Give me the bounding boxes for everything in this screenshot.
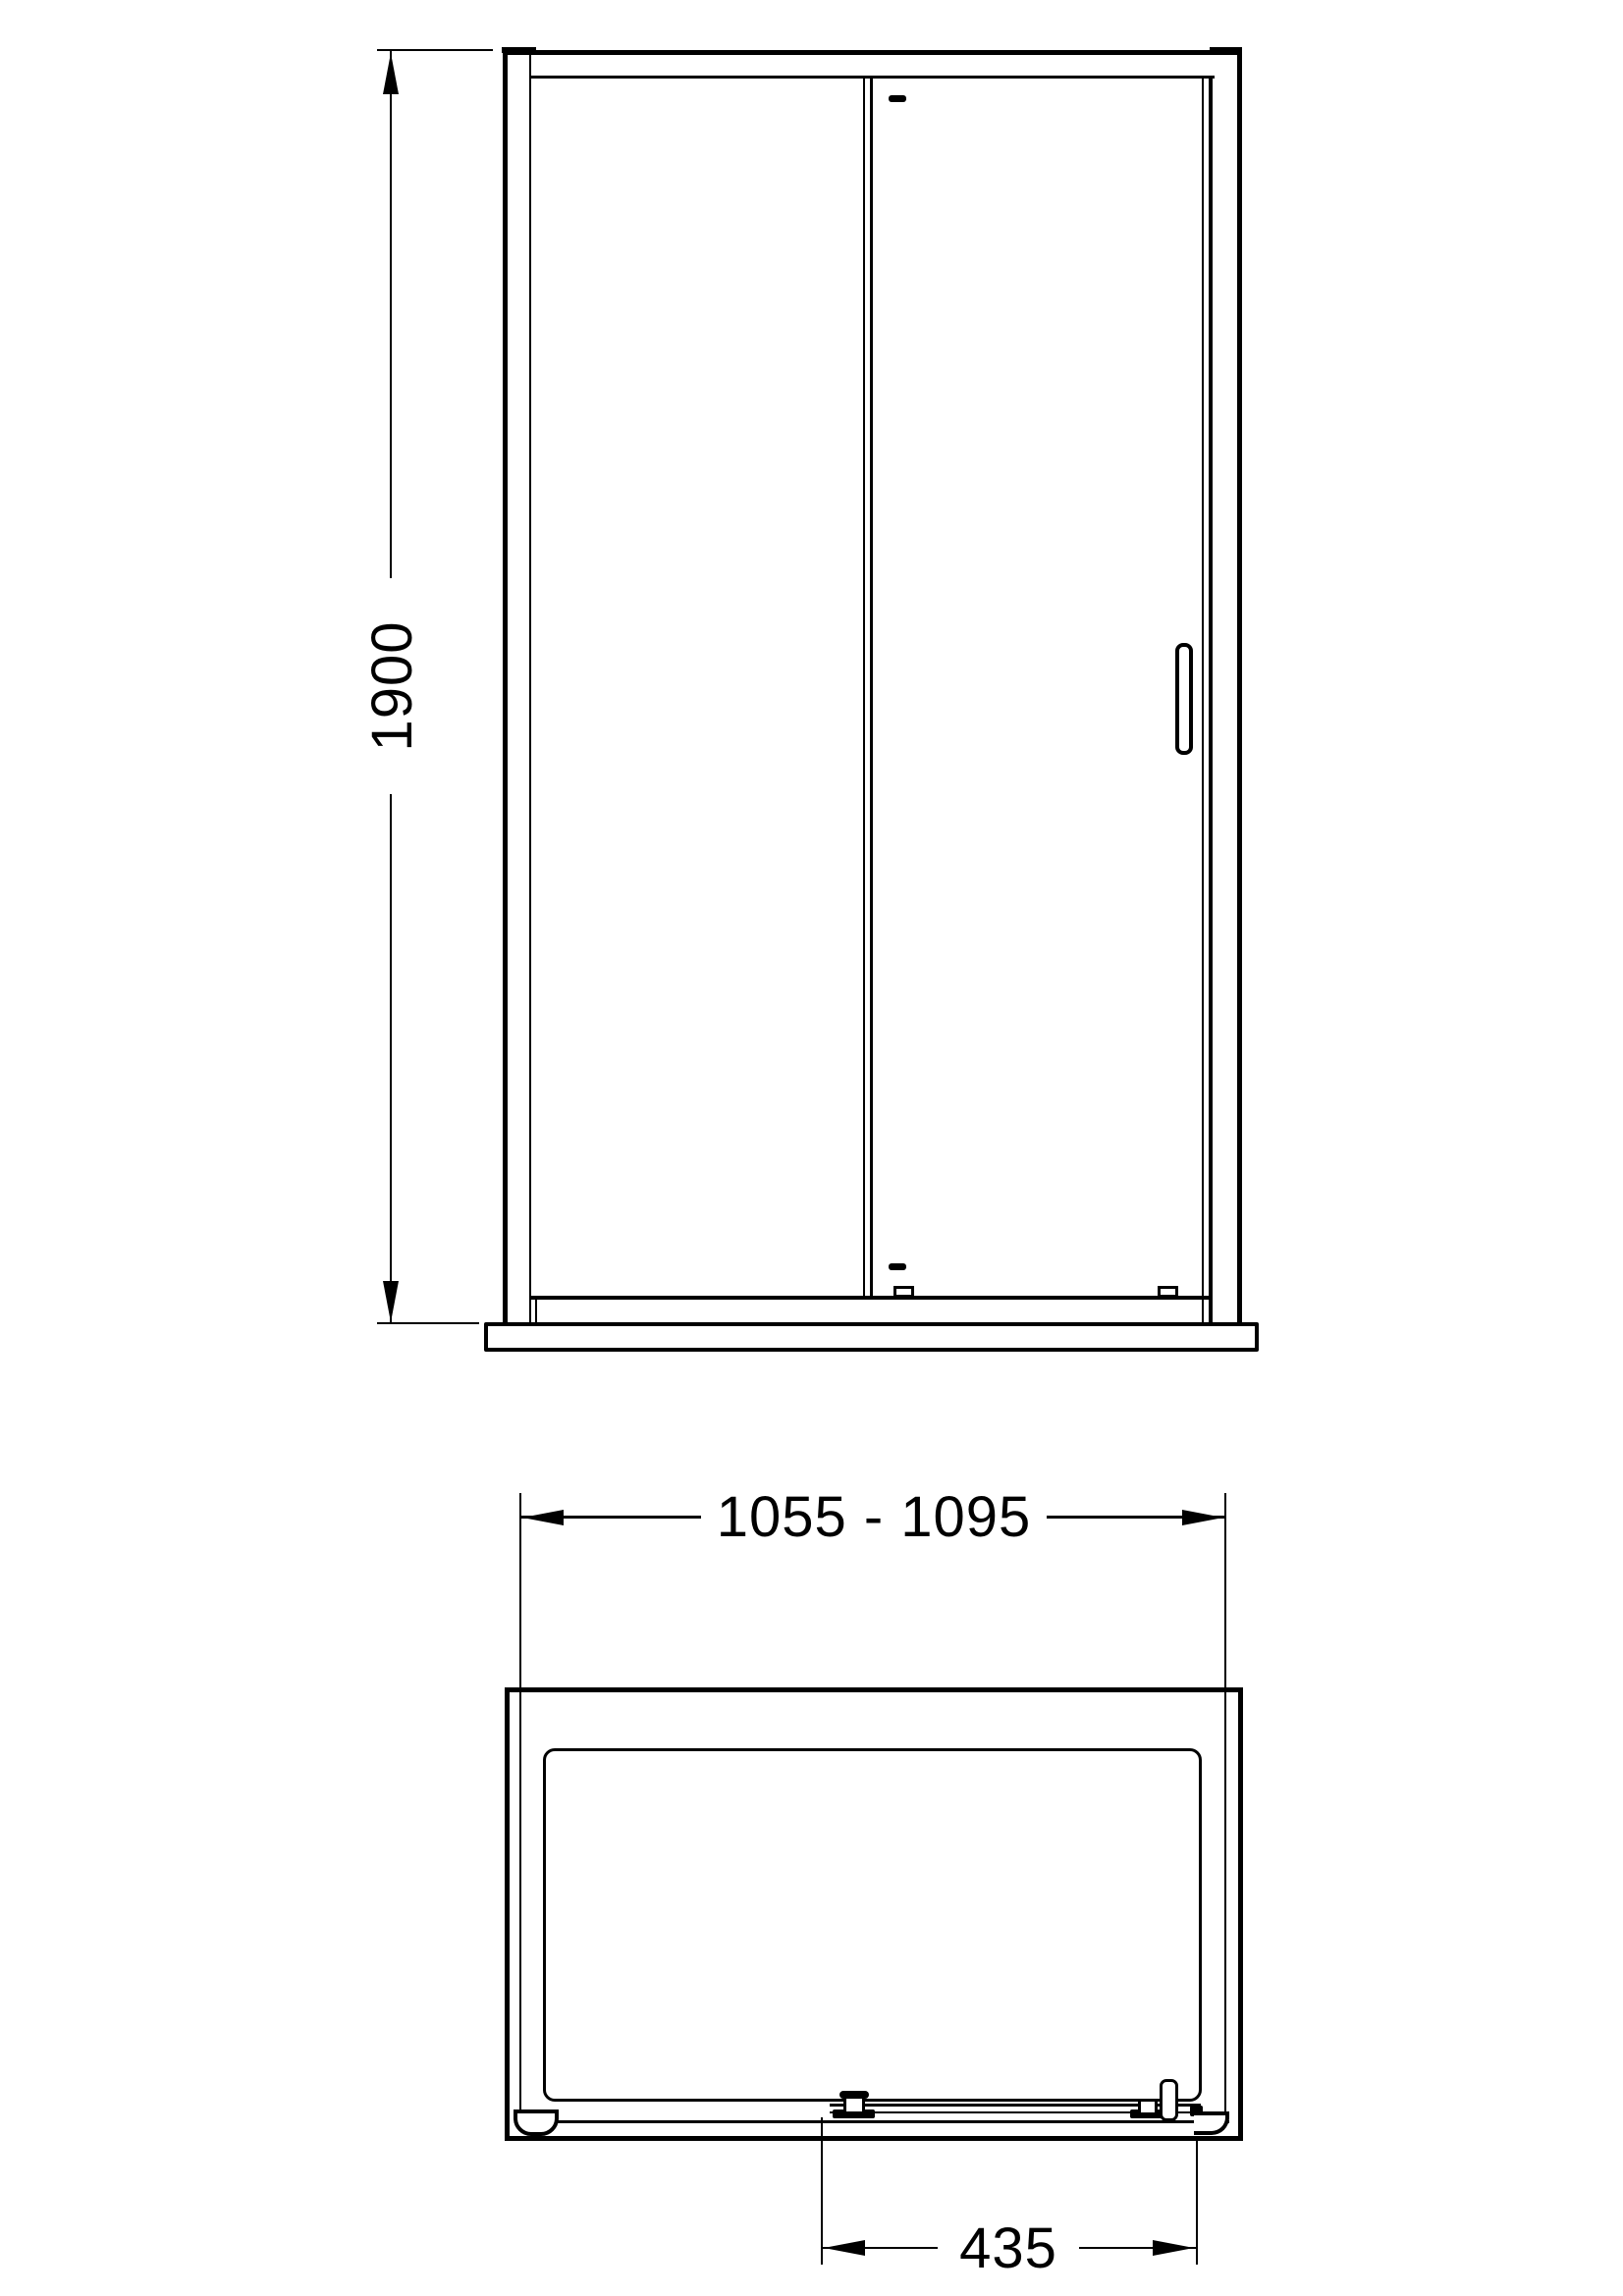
offset-dimension-label: 435: [938, 2217, 1079, 2278]
center-panel-overlap-line-1: [863, 79, 865, 1298]
arrowhead-left-icon: [522, 1510, 564, 1525]
door-handle-plan: [1160, 2079, 1178, 2121]
arrowhead-right-icon: [1153, 2240, 1194, 2256]
height-extension-line-bottom: [377, 1322, 479, 1324]
offset-extension-line-left: [821, 2117, 823, 2265]
left-stile-inner-edge: [529, 55, 531, 1323]
arrowhead-up-icon: [383, 53, 399, 94]
technical-drawing-sheet: 1900 1055 - 1095: [0, 0, 1623, 2296]
bottom-rail-edge: [531, 1296, 1209, 1300]
height-dimension-label: 1900: [361, 578, 422, 794]
roller-right-plan: [1138, 2099, 1158, 2115]
width-dimension-label: 1055 - 1095: [701, 1486, 1047, 1547]
bottom-track-line: [520, 2120, 1229, 2123]
door-edge-line-thick: [1209, 79, 1213, 1323]
bottom-guide-clip: [889, 1263, 906, 1270]
bottom-roller-right-elevation: [1158, 1286, 1178, 1298]
center-panel-overlap-line-2: [870, 79, 873, 1298]
arrowhead-down-icon: [383, 1281, 399, 1322]
left-stile-outer-edge: [503, 51, 508, 1323]
plan-glass-panel-outline: [543, 1748, 1202, 2102]
roller-left-plan: [843, 2096, 865, 2114]
top-guide-clip: [889, 95, 906, 102]
height-extension-line-top: [377, 49, 493, 51]
top-rail-outer-edge: [503, 50, 1242, 55]
door-handle-elevation: [1175, 643, 1193, 755]
top-rail-inner-edge: [531, 76, 1215, 79]
bottom-roller-left-elevation: [893, 1286, 914, 1298]
right-stile-outer-edge: [1237, 51, 1242, 1323]
track-end-cap-left: [514, 2109, 559, 2136]
door-edge-line-thin: [1202, 79, 1204, 1323]
arrowhead-right-icon: [1182, 1510, 1223, 1525]
shower-tray-elevation: [484, 1322, 1259, 1352]
left-stile-foot-line: [535, 1298, 537, 1323]
arrowhead-left-icon: [824, 2240, 865, 2256]
